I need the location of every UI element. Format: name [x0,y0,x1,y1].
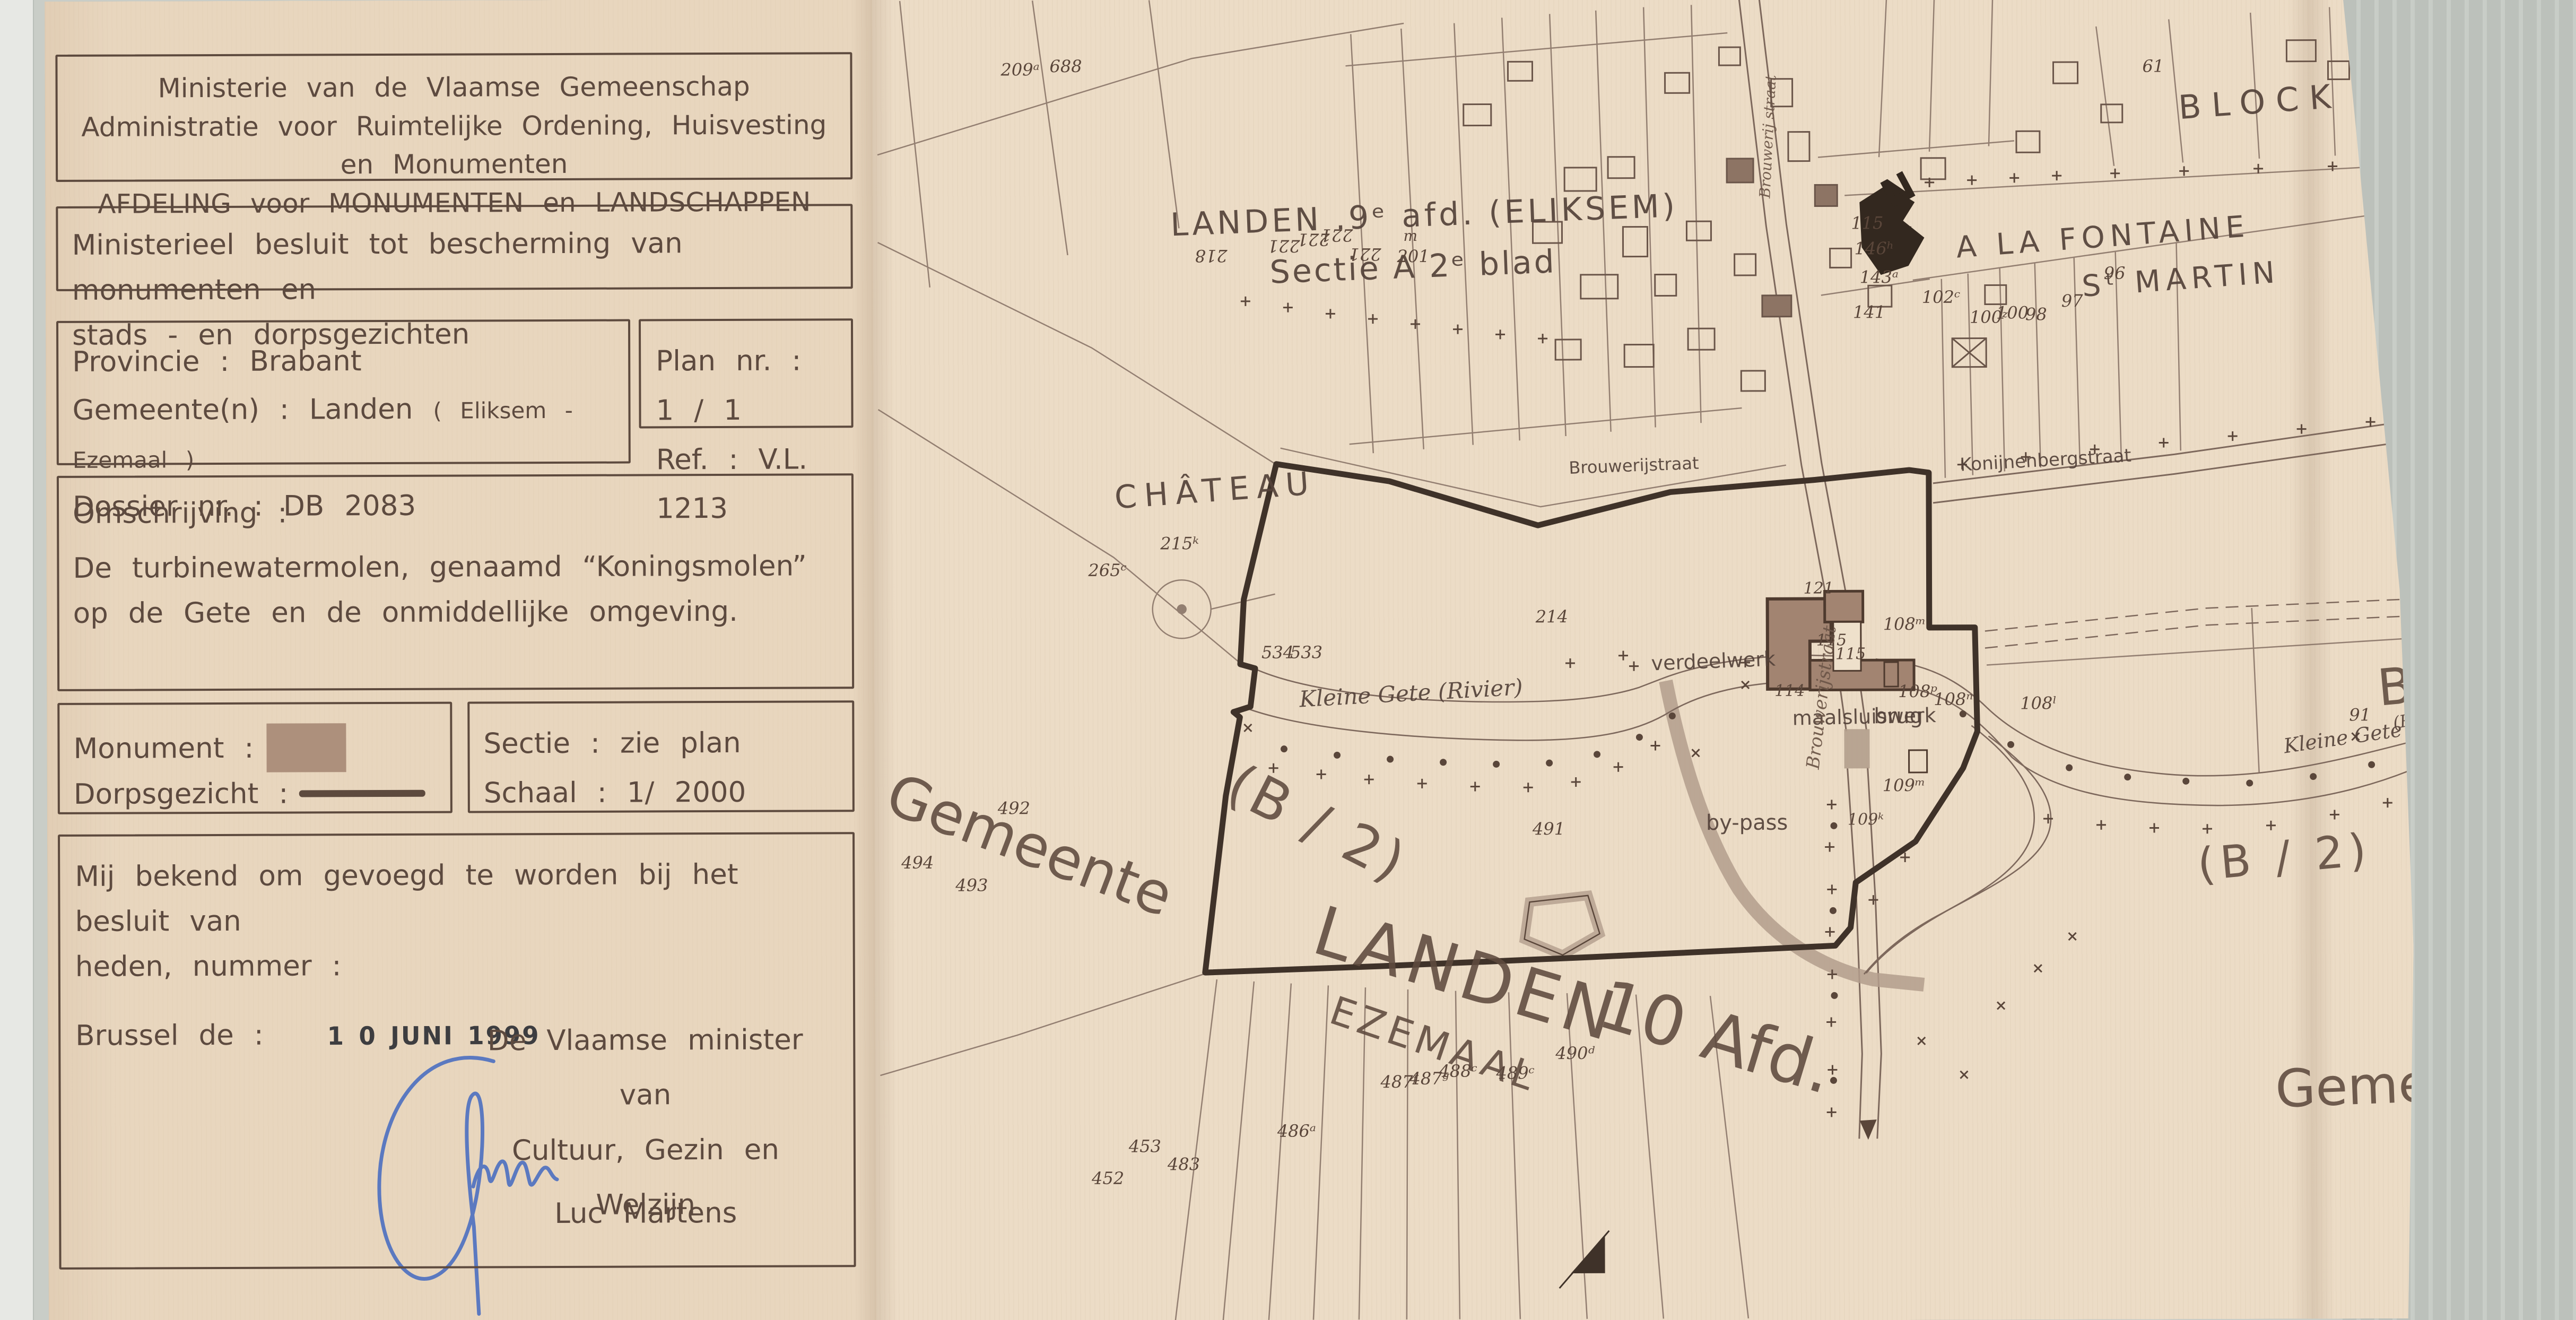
map-label: Kleine Gete [2282,719,2403,757]
closing-box: Mij bekend om gevoegd te worden bij het … [58,832,856,1270]
schaal-row: Schaal : 1/ 2000 [484,768,839,818]
parcel-number: 201 [1397,248,1430,265]
header-box: Ministerie van de Vlaamse Gemeenschap Ad… [55,52,852,182]
monument-label: Monument : [73,732,254,765]
map-label: Brouwerij straat [1757,74,1778,198]
parcel-number: 488ᶜ [1439,1063,1477,1080]
map-label: CHÂTEAU [1113,467,1317,514]
ref-label: Ref. : [656,443,738,475]
details-box: Provincie : Brabant Gemeente(n) : Landen… [56,319,631,465]
parcel-number: 453 [1129,1137,1161,1154]
ministry-line1: Ministerie van de Vlaamse Gemeenschap [57,67,850,108]
parcel-number: 492 [998,800,1030,817]
parcel-number: 218 [1195,247,1228,264]
parcel-number: 115 [1851,214,1883,231]
map-label: (B / 2) [1220,755,1416,891]
parcel-number: 221 [1349,246,1381,263]
map-label: 10 Afd. [1591,970,1841,1105]
parcel-number: 221 [1320,227,1353,244]
scanner-edge-left [0,0,34,1320]
dorpsgezicht-label: Dorpsgezicht : [74,778,289,811]
parcel-number: 490ᵈ [1555,1045,1595,1062]
gemeente-label: Gemeente(n) : [72,394,289,427]
plan-value: 1 / 1 [656,394,742,427]
provincie-label: Provincie : [72,345,229,378]
map-label: by-pass [1706,812,1788,833]
parcel-number: 61 [2142,57,2164,74]
brussel-label: Brussel de : [75,1013,264,1059]
parcel-number: 109ᵏ [1848,812,1884,828]
dorpsgezicht-row: Dorpsgezicht : [74,777,437,811]
closing-line1: Mij bekend om gevoegd te worden bij het … [75,852,838,944]
parcel-number: 114 [1774,683,1805,699]
monument-row: Monument : [73,723,436,773]
map-label: A LA FONTAINE [1955,212,2250,263]
parcel-number: 221 [1267,238,1300,255]
parcel-number: 115 [1835,646,1866,662]
map-label: Kleine Gete (Rivier) [1299,676,1523,710]
legend-box: Monument : Dorpsgezicht : [57,702,452,814]
parcel-number: m [1403,229,1417,244]
parcel-number: 534 [1261,644,1294,661]
signature-name: Luc Martens [455,1191,837,1237]
parcel-number: 491 [1533,820,1565,837]
parcel-number: 494 [901,854,934,871]
parcel-number: 486ᵃ [1277,1122,1316,1139]
parcel-number: 265ᶜ [1088,562,1126,579]
parcel-number: 688 [1049,58,1082,75]
map-label: LANDEN .9ᵉ afd. (ELIKSEM) [1170,190,1678,241]
parcel-number: 483 [1168,1156,1200,1173]
sectie-row: Sectie : zie plan [483,718,838,769]
parcel-number: 100 [1996,304,2029,321]
minister-line1: De Vlaamse minister van [454,1012,837,1123]
parcel-number: 452 [1092,1170,1124,1187]
parcel-number: 121 [1804,580,1834,596]
parcel-number: 141 [1853,303,1885,320]
map-label: Konijnenbergstraat [1960,447,2132,474]
parcel-number: 108ˡ [2020,694,2057,711]
decree-line1: Ministerieel besluit tot bescherming van… [72,221,837,313]
parcel-number: 533 [1290,644,1322,661]
parcel-number: 108ᵐ [1883,615,1926,632]
description-box: Omschrijving : De turbinewatermolen, gen… [57,473,854,691]
map-label: (B / 2) [2196,827,2373,887]
map-label: Brouwerijstraat [1569,455,1699,476]
map-label: brug [1874,706,1923,727]
dorpsgezicht-line-sample [299,790,425,797]
omschrijving-text: De turbinewatermolen, genaamd “Koningsmo… [73,544,816,636]
plan-ref-box: Plan nr. : 1 / 1 Ref. : V.L. 1213 [639,318,854,428]
paper-sheet: N LANDEN .9ᵉ afd. (ELIKSEM)Sectie A 2ᵉ b… [45,0,2415,1320]
scanned-protection-plan: N LANDEN .9ᵉ afd. (ELIKSEM)Sectie A 2ᵉ b… [0,0,2576,1320]
decree-title-box: Ministerieel besluit tot bescherming van… [56,204,852,291]
parcel-number: 108ᵖ [1898,683,1937,700]
closing-line2: heden, nummer : [75,942,838,989]
sectie-label: Sectie : [483,727,600,760]
parcel-number: 96 [2104,265,2126,282]
parcel-number: 108ⁿ [1934,691,1973,708]
parcel-number: 143ᵃ [1860,268,1899,285]
map-label: verdeelwerk [1651,649,1776,674]
provincie-value: Brabant [249,345,361,378]
parcel-number: 215ᵏ [1160,535,1199,552]
parcel-number: 109ᵐ [1883,777,1926,794]
parcel-number: 98 [2025,306,2047,323]
parcel-number: 214 [1536,608,1568,625]
schaal-value: 1/ 2000 [627,776,746,809]
monument-color-swatch [266,723,346,772]
parcel-number: 489ᶜ [1496,1064,1534,1081]
gemeente-value: Landen [309,393,413,426]
omschrijving-label: Omschrijving : [73,489,838,536]
provincie-row: Provincie : Brabant [72,336,614,386]
gemeente-row: Gemeente(n) : Landen ( Eliksem - Ezemaal… [72,385,615,483]
parcel-number: 91 [2349,706,2371,723]
sectie-value: zie plan [620,727,741,760]
schaal-label: Schaal : [484,776,607,809]
parcel-number: 493 [955,876,988,893]
sectie-schaal-box: Sectie : zie plan Schaal : 1/ 2000 [467,700,855,813]
plan-label: Plan nr. : [656,345,801,378]
parcel-number: 209ᵃ [1000,61,1039,78]
parcel-number: 97 [2061,292,2083,309]
parcel-number: 102ᶜ [1922,289,1960,306]
plan-row: Plan nr. : 1 / 1 [656,336,837,436]
parcel-number: 146ʰ [1855,240,1894,257]
ministry-line2: Administratie voor Ruimtelijke Ordening,… [58,106,850,185]
map-label: Gemeente [879,766,1180,926]
